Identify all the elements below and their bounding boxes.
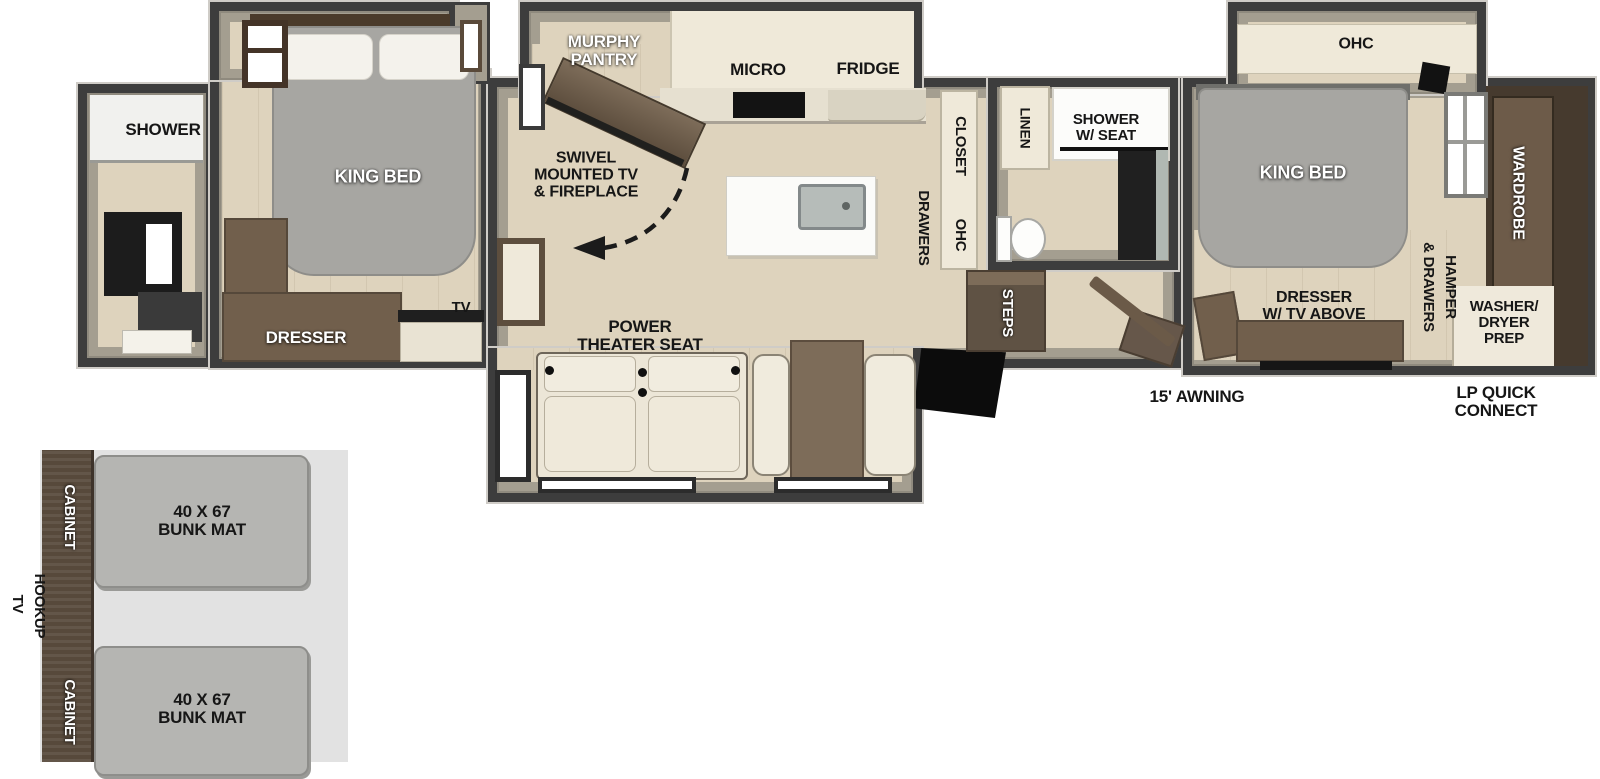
rear-king-bed-label: KING BED	[335, 167, 421, 186]
theater-seat-back-left	[544, 356, 636, 392]
dinette-bench-right	[864, 354, 916, 476]
rear-tv-label: TV	[452, 300, 471, 316]
rear-dresser-label: DRESSER	[266, 329, 347, 347]
front-corner-speaker	[1418, 62, 1450, 94]
kitchen-counter-upper	[670, 11, 914, 96]
steps-top	[968, 272, 1044, 285]
bunk-mat-bottom-label: 40 X 67 BUNK MAT	[158, 691, 246, 727]
washer-dryer-label: WASHER/ DRYER PREP	[1470, 299, 1539, 347]
front-dresser-label: DRESSER W/ TV ABOVE	[1263, 289, 1366, 323]
front-window-mullion-h	[1448, 140, 1484, 144]
rear-tv-bench	[400, 322, 482, 362]
seat-dot-1	[545, 366, 554, 375]
living-slide-window-bottom-right	[774, 477, 892, 493]
seat-dot-2	[638, 368, 647, 377]
bunk-cabinet-bottom-label: CABINET	[61, 679, 77, 744]
murphy-pantry-label: MURPHY PANTRY	[568, 33, 640, 69]
hamper-label: HAMPER	[1442, 255, 1458, 319]
rear-tv-bar	[398, 310, 484, 322]
rear-bath-drawer	[122, 330, 192, 354]
drawers-label: DRAWERS	[915, 190, 931, 265]
theater-seat-back-right	[648, 356, 740, 392]
fridge-label: FRIDGE	[836, 60, 899, 78]
steps-label: STEPS	[999, 289, 1015, 337]
rear-bedroom-window-left	[242, 20, 288, 88]
living-left-niche	[497, 238, 545, 326]
tv-hookup-hookup-label: HOOKUP	[31, 574, 47, 639]
toilet-bowl	[1010, 218, 1046, 260]
linen-label: LINEN	[1018, 107, 1033, 148]
cooktop	[733, 92, 805, 118]
kitchen-ohc-label: OHC	[952, 219, 968, 252]
micro-label: MICRO	[730, 61, 786, 79]
mid-shower-glass	[1156, 150, 1168, 260]
rear-bath-window-pane	[146, 224, 172, 284]
bunk-cabinet-top-label: CABINET	[61, 484, 77, 549]
seat-dot-3	[638, 388, 647, 397]
front-king-bed-label: KING BED	[1260, 163, 1346, 182]
entry-step-mat	[914, 348, 1006, 418]
awning-label: 15' AWNING	[1150, 388, 1245, 406]
swivel-tv-label: SWIVEL MOUNTED TV & FIREPLACE	[534, 149, 638, 200]
mid-shower-label: SHOWER W/ SEAT	[1073, 112, 1139, 144]
island-faucet	[842, 202, 850, 210]
rear-bedroom-window-right	[460, 20, 482, 72]
lp-quick-connect-label: LP QUICK CONNECT	[1455, 384, 1538, 420]
front-window-mullion-v	[1463, 96, 1467, 194]
dinette-bench-left	[752, 354, 790, 476]
rear-shower-label: SHOWER	[125, 121, 200, 139]
tv-hookup-tv-label: TV	[9, 595, 25, 614]
island-sink	[798, 184, 866, 230]
rear-bed-pillow-right	[379, 34, 469, 80]
mid-shower-rod	[1060, 147, 1168, 151]
closet-label: CLOSET	[952, 116, 968, 176]
theater-seat-cushion-right	[648, 396, 740, 472]
wardrobe-label: WARDROBE	[1509, 146, 1526, 240]
front-dresser-tv-bar	[1260, 361, 1392, 370]
bunk-mat-top-label: 40 X 67 BUNK MAT	[158, 503, 246, 539]
living-slide-window-left	[495, 370, 531, 482]
and-drawers-label: & DRAWERS	[1420, 242, 1436, 332]
living-slide-window-bottom-left	[538, 477, 696, 493]
floorplan-canvas: SHOWER KING BED DRESSER TV MURPHY PANTRY…	[0, 0, 1600, 779]
rear-bedroom-window-left-mullion	[248, 48, 282, 53]
dinette-table	[790, 340, 864, 484]
kitchen-left-window	[519, 64, 545, 130]
power-theater-label: POWER THEATER SEAT	[577, 318, 702, 354]
fridge-front	[828, 90, 926, 122]
front-ohc-label: OHC	[1339, 35, 1374, 52]
theater-seat-cushion-left	[544, 396, 636, 472]
seat-dot-4	[731, 366, 740, 375]
front-dresser	[1236, 320, 1404, 362]
rear-bed-pillow-left	[281, 34, 373, 80]
